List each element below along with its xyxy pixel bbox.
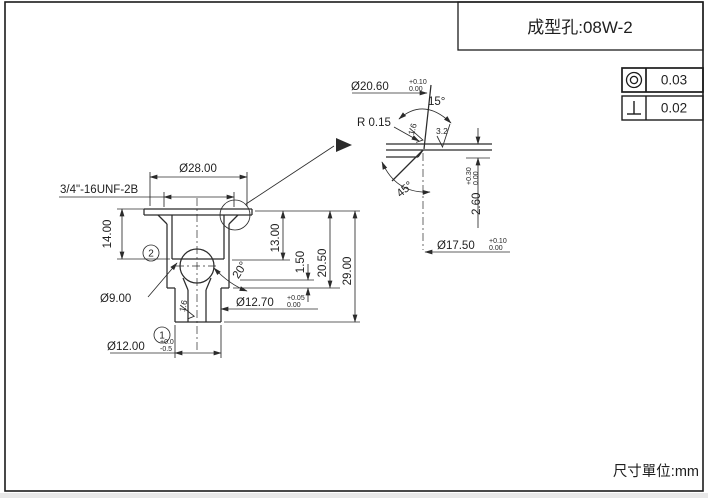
dim-height-29: 29.00: [342, 211, 355, 322]
dim-text: Ø28.00: [179, 163, 217, 175]
balloon-number: 1: [159, 331, 165, 342]
main-view: Ø28.00 3/4"-16UNF-2B 14.00: [59, 138, 360, 358]
page-title: 成型孔:08W-2: [527, 18, 633, 37]
dim-text: 29.00: [342, 257, 354, 286]
dim-dia-20-60: Ø20.60 +0.10 0.00: [351, 79, 427, 93]
roughness-value: 1.6: [406, 122, 419, 136]
dim-tolerance-lower: 0.00: [409, 86, 423, 93]
dim-tolerance-lower: 0.00: [473, 171, 480, 185]
dim-bore-12-70: Ø12.70 +0.05 0.00: [221, 295, 318, 309]
dim-tolerance-upper: +0.10: [489, 238, 507, 245]
dim-text: 14.00: [102, 220, 114, 249]
dim-tolerance-upper: +0.30: [466, 167, 473, 185]
dim-thread-callout: 3/4"-16UNF-2B: [59, 184, 234, 207]
tolerance-frame-concentricity: 0.03: [622, 68, 703, 92]
dim-depth-2-60: 2.60 +0.30 0.00: [466, 128, 490, 228]
dim-tolerance-lower: 0.00: [489, 245, 503, 252]
dim-text: 45°: [395, 180, 416, 200]
balloon-2: 2: [143, 245, 159, 261]
dim-text: 13.00: [270, 224, 282, 253]
tolerance-value: 0.03: [661, 73, 687, 88]
tolerance-value: 0.02: [661, 101, 687, 116]
dim-text: Ø12.70: [236, 297, 274, 309]
dim-text: 1.50: [295, 251, 307, 273]
title-block: 成型孔:08W-2: [458, 2, 703, 50]
concentricity-icon: [627, 73, 642, 88]
roughness-mark: 1.6: [405, 122, 427, 144]
dim-height-13: 13.00: [270, 211, 283, 260]
drawing-canvas: 成型孔:08W-2 0.03 0.02: [0, 0, 708, 493]
detail-view: Ø20.60 +0.10 0.00 15° R 0.15 1.6 3.2 45°: [351, 79, 510, 252]
dim-tolerance-upper: +0.05: [287, 295, 305, 302]
balloon-number: 2: [148, 249, 154, 260]
roughness-mark: 1.6: [176, 299, 197, 320]
dim-cone-angle: 20°: [214, 260, 250, 291]
unit-note: 尺寸單位:mm: [613, 463, 699, 480]
dim-text: 15°: [428, 96, 445, 108]
dim-text: Ø17.50: [437, 240, 475, 252]
dim-text: 2.60: [471, 193, 483, 215]
dim-text: Ø9.00: [100, 293, 131, 305]
dim-text: Ø20.60: [351, 81, 389, 93]
detail-arrow-icon: [336, 138, 352, 152]
dim-dia-17-50: Ø17.50 +0.10 0.00: [425, 238, 510, 252]
dim-tolerance-lower: -0.5: [160, 346, 172, 353]
dim-text: 3/4"-16UNF-2B: [60, 184, 139, 196]
drawing-sheet: 成型孔:08W-2 0.03 0.02: [0, 0, 708, 493]
dim-text: R 0.15: [357, 117, 391, 129]
roughness-value: 3.2: [436, 126, 448, 136]
dim-text: 20°: [231, 260, 250, 281]
perpendicularity-icon: [627, 101, 641, 114]
tolerance-frame-perpendicularity: 0.02: [622, 96, 703, 120]
dim-text: Ø12.00: [107, 341, 145, 353]
dim-text: 20.50: [317, 249, 329, 278]
dim-flange-diameter: Ø28.00: [150, 163, 247, 206]
detail-callout: [220, 138, 352, 230]
detail-outline: [386, 85, 492, 250]
dim-tolerance-lower: 0.00: [287, 302, 301, 309]
balloon-1: 1: [154, 327, 170, 343]
dim-tolerance-upper: +0.10: [409, 79, 427, 86]
dim-height-20-50: 20.50: [317, 211, 330, 288]
dim-angle-15: 15°: [399, 96, 451, 123]
dim-bore-9: Ø9.00: [100, 263, 177, 305]
